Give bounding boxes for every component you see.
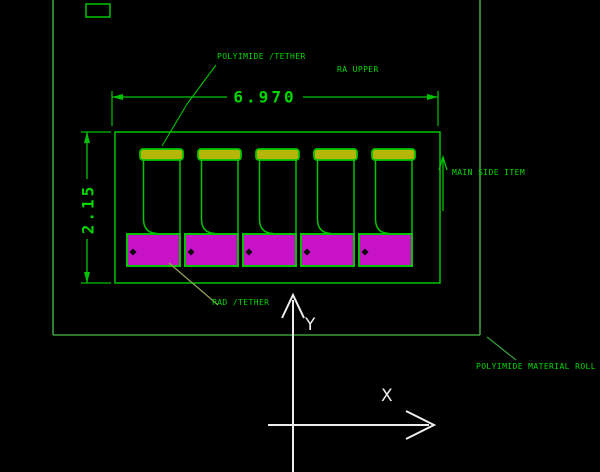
channel-left-line (202, 160, 216, 234)
yellow-bar (198, 149, 241, 160)
small-reference-rectangle[interactable] (86, 4, 110, 17)
channel-left-line (318, 160, 332, 234)
label-polyimide-tether[interactable]: POLYIMIDE /TETHER (217, 52, 306, 62)
cell[interactable] (127, 149, 183, 266)
channel-left-line (260, 160, 274, 234)
pad-rect (127, 234, 180, 266)
yellow-bar (314, 149, 357, 160)
label-ra-upper[interactable]: RA UPPER (337, 65, 379, 75)
outer-frame[interactable] (53, 0, 480, 335)
leader-polyimide-tether[interactable] (162, 65, 216, 146)
cell[interactable] (359, 149, 415, 266)
label-pad-tether[interactable]: PAD /TETHER (212, 298, 269, 308)
dimension-width-text[interactable]: 6.970 (233, 88, 296, 107)
dim-arrow-right (427, 94, 438, 100)
label-main-side[interactable]: MAIN SIDE ITEM (452, 168, 525, 178)
y-axis-label: Y (305, 315, 315, 335)
ucs-axis-icon (268, 295, 434, 472)
pad-rect (243, 234, 296, 266)
cell[interactable] (243, 149, 299, 266)
drawing-geometry (0, 0, 600, 472)
x-axis-label: X (381, 386, 393, 406)
leader-material-roll[interactable] (487, 337, 516, 360)
dim-arrow-bottom (84, 272, 90, 283)
label-material-roll[interactable]: POLYIMIDE MATERIAL ROLL (476, 362, 596, 372)
cell[interactable] (185, 149, 241, 266)
yellow-bar (140, 149, 183, 160)
dim-arrow-left (112, 94, 123, 100)
pad-rect (359, 234, 412, 266)
cad-drawing-canvas[interactable]: POLYIMIDE /TETHER RA UPPER MAIN SIDE ITE… (0, 0, 600, 472)
leader-pad-tether[interactable] (169, 263, 218, 305)
dimension-height-text[interactable]: 2.15 (79, 184, 98, 235)
pad-rect (301, 234, 354, 266)
yellow-bar (372, 149, 415, 160)
channel-left-line (144, 160, 158, 234)
yellow-bar (256, 149, 299, 160)
channel-left-line (376, 160, 390, 234)
pad-rect (185, 234, 238, 266)
cell[interactable] (301, 149, 357, 266)
dim-arrow-top (84, 132, 90, 143)
